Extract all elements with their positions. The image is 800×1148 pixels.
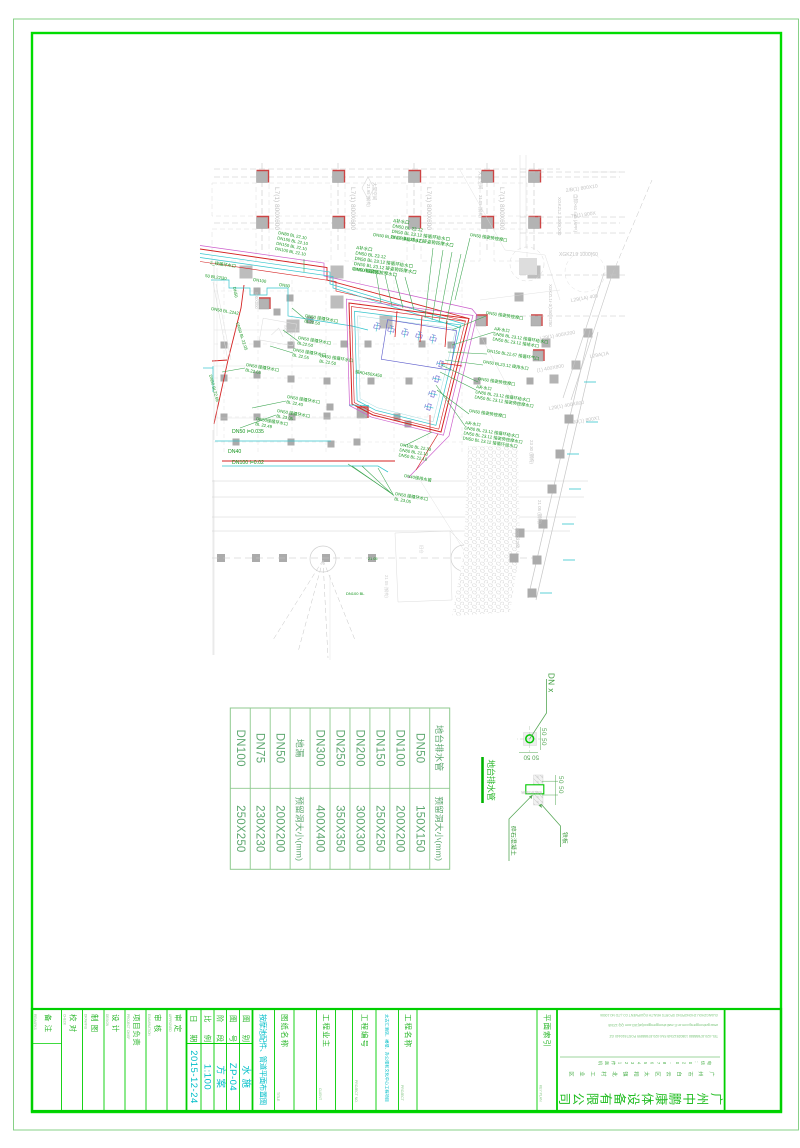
svg-text:50 50: 50 50 [557, 776, 564, 794]
svg-text:4: 4 [637, 1062, 642, 1065]
svg-text:PROJECT: PROJECT [400, 1085, 404, 1101]
svg-text:广: 广 [708, 1071, 716, 1076]
svg-text:预留洞大小(mm): 预留洞大小(mm) [295, 796, 306, 861]
svg-text:0: 0 [675, 1062, 680, 1065]
svg-text:传: 传 [610, 1061, 617, 1065]
svg-text:项目负责: 项目负责 [132, 1014, 142, 1046]
svg-text:白: 白 [676, 1071, 684, 1076]
svg-text:机: 机 [597, 1061, 604, 1066]
svg-text:校 对: 校 对 [69, 1014, 79, 1033]
svg-text:1:100: 1:100 [202, 1064, 213, 1090]
svg-text:比 例: 比 例 [203, 1015, 213, 1047]
svg-text:DN150: DN150 [373, 730, 385, 767]
svg-text:DRAWING: DRAWING [84, 1014, 88, 1030]
svg-text:50 50: 50 50 [540, 728, 547, 746]
svg-text:PROJECT CHIEF: PROJECT CHIEF [126, 1014, 130, 1039]
svg-text:8: 8 [662, 1062, 667, 1065]
svg-text:图 别: 图 别 [241, 1015, 250, 1047]
svg-text:www.gzzhongpeng.com.cn E-ma: www.gzzhongpeng.com.cn E-mail:zhongpengp… [608, 1023, 718, 1027]
svg-text:碎石混凝土: 碎石混凝土 [510, 826, 518, 856]
svg-text:州: 州 [697, 1071, 703, 1076]
svg-text:DN300: DN300 [314, 730, 326, 767]
svg-text:业: 业 [578, 1071, 586, 1076]
svg-text:DN50: DN50 [413, 733, 425, 764]
svg-text:DN50: DN50 [274, 733, 286, 764]
svg-text:水 施: 水 施 [240, 1065, 252, 1088]
svg-text:地漏: 地漏 [295, 739, 306, 758]
svg-text:地台排水管: 地台排水管 [434, 725, 445, 772]
svg-text:真: 真 [604, 1061, 611, 1065]
svg-text:250X250: 250X250 [234, 805, 246, 852]
svg-text:鹏: 鹏 [668, 1093, 682, 1106]
svg-text:按摩池配件、管道平面布置图: 按摩池配件、管道平面布置图 [259, 1014, 268, 1105]
svg-text:250X250: 250X250 [373, 805, 385, 852]
svg-text:CLIENT: CLIENT [318, 1088, 322, 1100]
svg-text:太: 太 [643, 1071, 651, 1077]
svg-text:APPROVED: APPROVED [168, 1014, 172, 1032]
svg-text:200X200: 200X200 [274, 805, 286, 852]
svg-text:区: 区 [568, 1071, 575, 1076]
svg-text:图纸名称: 图纸名称 [280, 1014, 290, 1048]
svg-text:话: 话 [700, 1061, 707, 1065]
svg-text:REMARKS: REMARKS [33, 1014, 37, 1030]
svg-text:200X200: 200X200 [393, 805, 405, 852]
svg-text:公: 公 [571, 1093, 585, 1106]
svg-text:有: 有 [599, 1093, 613, 1106]
svg-text:工程名称: 工程名称 [403, 1014, 413, 1048]
svg-text:北: 北 [611, 1071, 619, 1077]
svg-text:村: 村 [600, 1071, 608, 1076]
svg-text:日 期: 日 期 [189, 1015, 198, 1047]
svg-text:司: 司 [557, 1093, 571, 1106]
svg-text:铁板: 铁板 [561, 832, 569, 844]
svg-text:：: ： [694, 1061, 699, 1065]
svg-text:EXAMINATION: EXAMINATION [147, 1014, 151, 1036]
svg-text:审 定: 审 定 [173, 1014, 183, 1033]
svg-text:广: 广 [709, 1093, 723, 1106]
svg-text:3: 3 [630, 1062, 635, 1065]
svg-text:康: 康 [654, 1093, 669, 1106]
svg-text:工: 工 [589, 1071, 596, 1076]
svg-text:350X350: 350X350 [334, 805, 346, 852]
svg-text:方 案: 方 案 [214, 1065, 226, 1088]
svg-text:平面索引: 平面索引 [543, 1014, 553, 1048]
svg-text:400X400: 400X400 [314, 805, 326, 852]
svg-text:DN250: DN250 [334, 730, 346, 767]
svg-text:设: 设 [626, 1093, 641, 1106]
svg-text:7: 7 [656, 1062, 661, 1065]
svg-text:DN200: DN200 [353, 730, 365, 767]
svg-text:云: 云 [665, 1071, 672, 1076]
svg-text:6: 6 [649, 1062, 654, 1065]
svg-text:和: 和 [632, 1071, 640, 1076]
svg-text:备: 备 [612, 1093, 626, 1106]
svg-text:2: 2 [624, 1062, 629, 1065]
svg-text:审 核: 审 核 [153, 1014, 163, 1033]
svg-text:-: - [669, 1062, 674, 1064]
svg-text:ZP-04: ZP-04 [227, 1063, 238, 1091]
svg-text:300X300: 300X300 [353, 805, 365, 852]
svg-text:设 计: 设 计 [111, 1014, 121, 1033]
svg-text:太古汇酒店、裙楼、办公楼和文化中心工程项目: 太古汇酒店、裙楼、办公楼和文化中心工程项目 [383, 1014, 390, 1102]
svg-text:2: 2 [681, 1062, 686, 1065]
svg-text:中: 中 [681, 1093, 696, 1106]
svg-text:PROJECT NO.: PROJECT NO. [354, 1080, 358, 1103]
svg-text:市: 市 [686, 1071, 694, 1076]
svg-text:镇: 镇 [622, 1071, 630, 1076]
svg-text:50 50: 50 50 [523, 754, 539, 761]
svg-text:DESIGN: DESIGN [105, 1014, 109, 1027]
svg-text:150X150: 150X150 [413, 805, 425, 852]
svg-text:CHECK: CHECK [63, 1014, 67, 1026]
svg-text:备 注: 备 注 [43, 1014, 53, 1033]
svg-text:预留洞大小(mm): 预留洞大小(mm) [434, 796, 445, 861]
svg-text:DN100: DN100 [234, 730, 246, 767]
svg-text:230X230: 230X230 [254, 805, 266, 852]
svg-text:TITLE: TITLE [276, 1092, 280, 1102]
svg-text:地台排水管: 地台排水管 [486, 760, 497, 802]
svg-text:1: 1 [617, 1062, 622, 1065]
svg-text:州: 州 [695, 1093, 709, 1106]
svg-text:KEY PLAN: KEY PLAN [538, 1085, 542, 1102]
svg-text:体: 体 [640, 1093, 654, 1106]
svg-text:制 图: 制 图 [90, 1014, 100, 1033]
svg-text:0: 0 [688, 1062, 693, 1065]
svg-text:DN x: DN x [547, 673, 556, 693]
svg-text:TEL:020-87658888 13802512345: TEL:020-87658888 13802512345 FAX:020-876… [609, 1034, 718, 1038]
svg-text:2015-12-24: 2015-12-24 [188, 1050, 199, 1104]
svg-text:电: 电 [707, 1061, 713, 1066]
svg-text:阶 段: 阶 段 [216, 1015, 226, 1047]
svg-text:GUANGZHOU ZHONGPENG SPORTS HEA: GUANGZHOU ZHONGPENG SPORTS HEALTH EQUIPM… [600, 1013, 718, 1017]
svg-text:DN100: DN100 [393, 730, 405, 767]
svg-text:5: 5 [643, 1062, 648, 1065]
svg-text:工程业主: 工程业主 [322, 1014, 332, 1048]
svg-text:图 号: 图 号 [228, 1015, 237, 1047]
svg-text:限: 限 [585, 1093, 599, 1106]
svg-text:预埋套管详见结构: 预埋套管详见结构 [521, 791, 542, 795]
svg-text:工程编号: 工程编号 [360, 1014, 370, 1048]
svg-text:DN75: DN75 [254, 733, 266, 764]
svg-text:区: 区 [654, 1071, 661, 1076]
